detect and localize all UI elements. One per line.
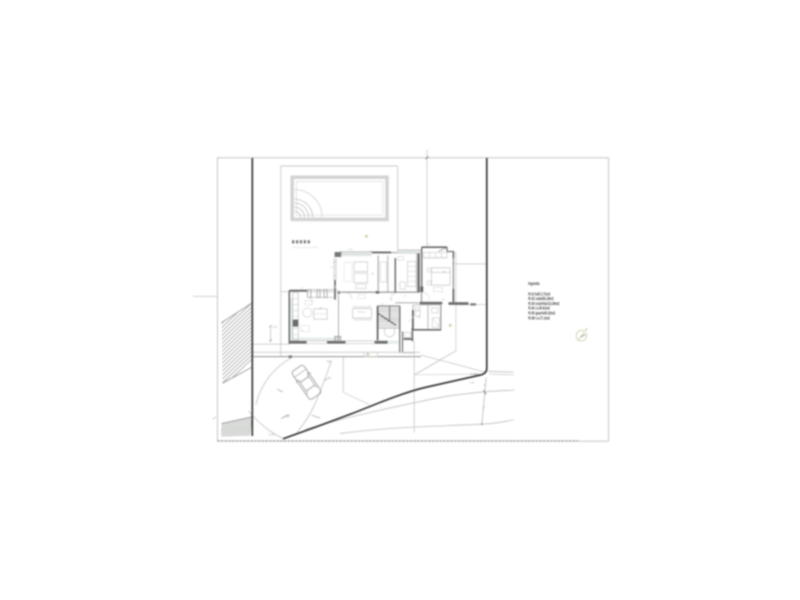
svg-text:is: is <box>419 316 422 319</box>
svg-text:dp: dp <box>442 299 445 301</box>
svg-text:0.8: 0.8 <box>273 326 278 329</box>
svg-text:R.06 i.s./7.1m2: R.06 i.s./7.1m2 <box>528 315 550 320</box>
svg-text:sl: sl <box>372 272 374 276</box>
svg-text:1.9: 1.9 <box>470 381 475 384</box>
svg-text:3.2: 3.2 <box>427 244 432 246</box>
svg-text:1.50: 1.50 <box>269 433 276 436</box>
svg-text:legenda: legenda <box>528 281 540 286</box>
svg-text:qt: qt <box>443 270 445 274</box>
svg-text:hl: hl <box>390 299 392 302</box>
svg-text:sb: sb <box>381 303 384 305</box>
svg-text:8: 8 <box>483 407 485 410</box>
svg-text:mesa: mesa <box>358 312 367 314</box>
svg-text:4.30: 4.30 <box>348 249 354 251</box>
svg-text:wc: wc <box>404 296 408 298</box>
svg-text:1.50: 1.50 <box>283 415 290 418</box>
